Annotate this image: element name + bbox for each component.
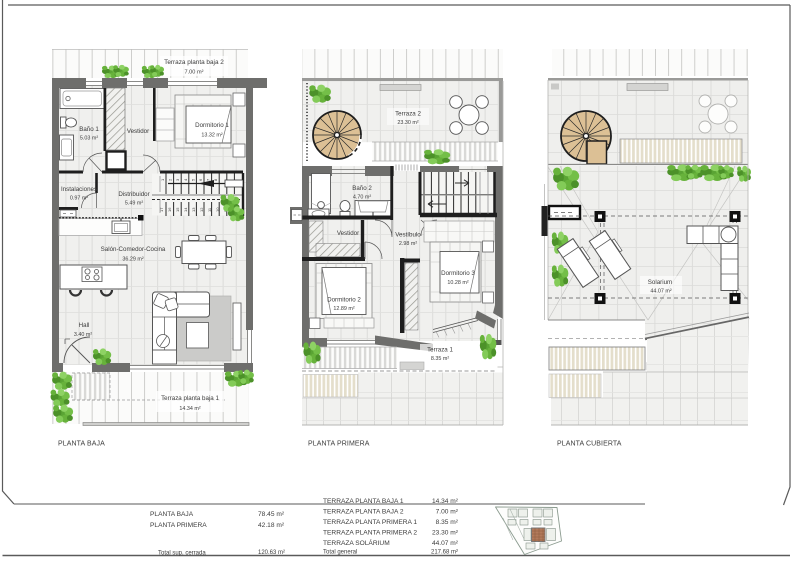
svg-text:PLANTA BAJA: PLANTA BAJA [150,511,194,518]
svg-text:78.45 m²: 78.45 m² [258,511,285,518]
svg-text:TERRAZA SOLÁRIUM: TERRAZA SOLÁRIUM [323,538,390,547]
svg-text:Dormitorio 1: Dormitorio 1 [195,122,229,129]
svg-text:Terraza 1: Terraza 1 [427,347,453,354]
svg-text:5.49 m²: 5.49 m² [125,201,143,207]
svg-text:PLANTA PRIMERA: PLANTA PRIMERA [150,522,207,529]
svg-text:Solarium: Solarium [648,279,672,286]
svg-text:13.32 m²: 13.32 m² [201,133,222,139]
svg-text:7.00 m²: 7.00 m² [436,509,459,516]
svg-text:Vestíbulo: Vestíbulo [395,232,421,239]
svg-text:36.29 m²: 36.29 m² [122,257,143,263]
svg-text:Dormitorio 2: Dormitorio 2 [327,297,361,304]
svg-text:PLANTA BAJA: PLANTA BAJA [58,441,105,448]
svg-text:Total general: Total general [323,550,357,556]
svg-text:Terraza planta baja 2: Terraza planta baja 2 [164,59,224,66]
svg-text:Baño 2: Baño 2 [352,185,372,192]
svg-text:14.34 m²: 14.34 m² [179,406,200,412]
svg-text:PLANTA PRIMERA: PLANTA PRIMERA [308,441,370,448]
svg-text:12.89 m²: 12.89 m² [333,306,354,312]
svg-text:TERRAZA PLANTA BAJA 2: TERRAZA PLANTA BAJA 2 [323,509,404,516]
svg-text:Dormitorio 3: Dormitorio 3 [441,270,475,277]
svg-text:Terraza 2: Terraza 2 [395,111,421,118]
svg-text:8.35 m²: 8.35 m² [436,519,459,526]
svg-text:Baño 1: Baño 1 [79,126,99,133]
svg-text:15: 15 [175,207,180,212]
svg-text:8.35 m²: 8.35 m² [431,356,449,362]
svg-text:0.97 m²: 0.97 m² [70,196,88,202]
svg-text:7.00 m²: 7.00 m² [185,70,204,76]
svg-text:17: 17 [159,207,164,212]
svg-text:Salón-Comedor-Cocina: Salón-Comedor-Cocina [101,246,166,253]
svg-text:23.30 m²: 23.30 m² [397,120,418,126]
svg-text:120.63 m²: 120.63 m² [258,550,285,556]
svg-text:Hall: Hall [79,322,90,329]
svg-text:TERRAZA PLANTA PRIMERA 1: TERRAZA PLANTA PRIMERA 1 [323,519,417,526]
svg-text:12: 12 [199,207,204,212]
svg-text:14.34 m²: 14.34 m² [432,498,459,505]
svg-text:Distribuidor: Distribuidor [118,191,149,198]
svg-text:10.28 m²: 10.28 m² [447,280,468,286]
svg-text:Vestidor: Vestidor [337,230,359,237]
svg-text:Terraza planta baja 1: Terraza planta baja 1 [161,395,219,402]
svg-text:4.70 m²: 4.70 m² [353,195,371,201]
svg-text:2.98 m²: 2.98 m² [399,241,417,247]
svg-text:10: 10 [215,207,220,212]
svg-text:5.03 m²: 5.03 m² [80,136,98,142]
svg-text:16: 16 [167,207,172,212]
svg-text:TERRAZA PLANTA BAJA 1: TERRAZA PLANTA BAJA 1 [323,498,404,505]
svg-text:TERRAZA PLANTA PRIMERA 2: TERRAZA PLANTA PRIMERA 2 [323,530,417,537]
svg-text:Vestidor: Vestidor [127,128,149,135]
svg-text:Instalaciones: Instalaciones [61,186,97,193]
svg-text:42.18 m²: 42.18 m² [258,522,285,529]
svg-text:Total sup. cerrada: Total sup. cerrada [158,551,206,557]
svg-text:44.07 m²: 44.07 m² [432,540,459,547]
svg-text:44.07 m²: 44.07 m² [650,289,671,295]
svg-text:PLANTA CUBIERTA: PLANTA CUBIERTA [557,441,622,448]
svg-text:13: 13 [191,207,196,212]
svg-text:217.68 m²: 217.68 m² [431,550,458,556]
svg-text:23.30 m²: 23.30 m² [432,530,459,537]
svg-text:14: 14 [183,207,188,212]
